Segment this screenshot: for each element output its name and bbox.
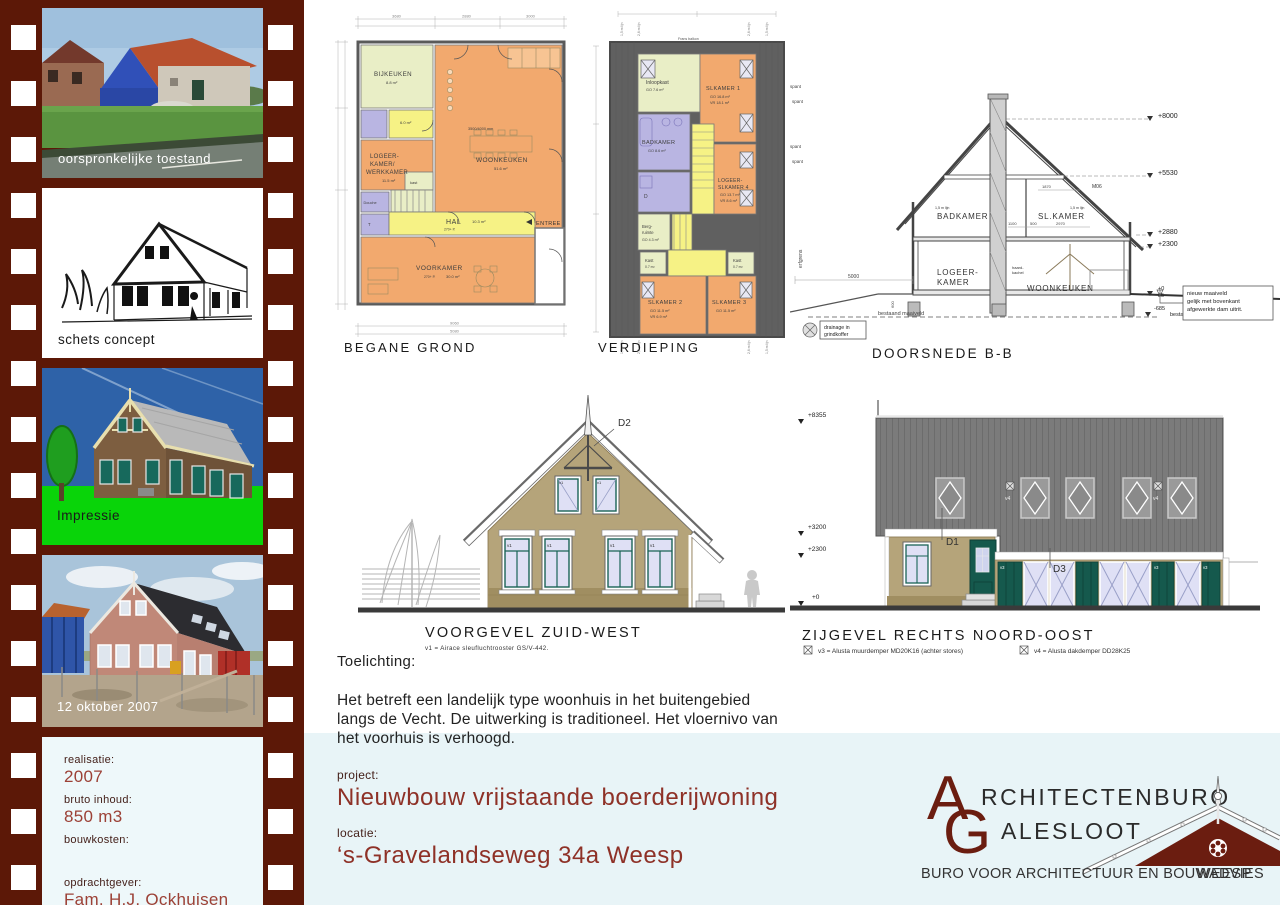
svg-text:v1: v1 [650,543,655,548]
svg-text:v4 = Alusta dakdemper DD28K25: v4 = Alusta dakdemper DD28K25 [1034,648,1131,655]
photo-original-state: oorspronkelijke toestand [42,8,263,178]
svg-text:KAMER/: KAMER/ [370,162,395,168]
floorplan-upper-floor: 1,5 m lijn 2,6 m lijn 2,6 m lijn 1,5 m l… [588,2,806,358]
frans-balkon-label: Frans balkon [678,37,699,41]
dim-label: 9060 [450,321,460,326]
svg-text:1,5 m lijn: 1,5 m lijn [765,340,769,354]
bruto-inhoud-label: bruto inhoud: [64,794,263,806]
svg-text:drainage in: drainage in [824,325,850,331]
svg-text:nieuw maaiveld: nieuw maaiveld [1187,291,1227,297]
title-doorsnede: DOORSNEDE B-B [872,346,1014,361]
project-label: project: [337,768,778,782]
spant-label: spant [792,99,804,104]
svg-text:VOORKAMER: VOORKAMER [416,265,463,272]
svg-text:Berg-: Berg- [642,224,653,229]
svg-text:GO 11.5 m²: GO 11.5 m² [650,309,670,313]
svg-text:grindkoffer: grindkoffer [824,332,849,338]
svg-text:0.7 m²: 0.7 m² [733,265,743,269]
company-logo: A RCHITECTENBURO G ALESLOOT BURO VOOR [905,760,1280,900]
opdrachtgever-value: Fam. H.J. Ockhuisen [64,890,263,905]
svg-text:WOONKEUKEN: WOONKEUKEN [476,157,528,164]
svg-text:1,5 m lijn: 1,5 m lijn [620,22,624,36]
dim-label: 3680 [392,14,402,19]
dim-label: 5080 [450,329,460,334]
entree-label: ENTREE [536,221,561,227]
bruto-inhoud-value: 850 m3 [64,807,263,827]
svg-text:kachel: kachel [1012,270,1024,275]
svg-text:-685: -685 [1154,306,1165,312]
logo-city: WEESP [1197,866,1252,882]
side-elevation: +8355 +3200 +2300 +0 [790,390,1260,680]
svg-text:T: T [368,222,371,227]
svg-text:v3 = Alusta muurdemper MD20K16: v3 = Alusta muurdemper MD20K16 (achter s… [818,648,963,655]
svg-text:1,5 m lijn: 1,5 m lijn [935,206,949,210]
svg-text:6.0 m²: 6.0 m² [400,120,412,125]
svg-text:HAL: HAL [446,219,461,226]
svg-text:2970: 2970 [1056,221,1066,226]
realisatie-value: 2007 [64,767,263,787]
d1-label: D1 [946,537,959,548]
logo-letter-g: G [943,802,991,864]
opdrachtgever-label: opdrachtgever: [64,877,263,889]
svg-text:BADKAMER: BADKAMER [937,212,988,221]
svg-text:GO 16.8 m²: GO 16.8 m² [710,95,731,99]
sketch-concept: schets concept [42,188,263,358]
tree-sketch [362,519,480,607]
svg-text:270+ P.: 270+ P. [424,275,436,279]
svg-text:10.3 m²: 10.3 m² [472,219,486,224]
svg-text:v3: v3 [1203,565,1208,570]
svg-text:SL.KAMER: SL.KAMER [1038,212,1085,221]
presentation-board: oorspronkelijke toestand [0,0,1280,905]
erfgrens-label: erfgrens [798,249,804,268]
svg-text:270+ P.: 270+ P. [444,228,456,232]
photo-label-original-state: oorspronkelijke toestand [58,151,211,166]
svg-text:v4: v4 [1153,496,1159,502]
svg-text:BADKAMER: BADKAMER [642,140,675,146]
svg-text:0.7 m²: 0.7 m² [645,265,655,269]
legend: v3 = Alusta muurdemper MD20K16 (achter s… [804,646,1131,655]
sketch-label: schets concept [58,332,155,347]
project-block: project: Nieuwbouw vrijstaande boerderij… [337,768,778,884]
filmstrip-sprockets-left [11,0,36,905]
render-label: Impressie [57,508,120,523]
render-impression: Impressie [42,368,263,545]
photo-label-construction: 12 oktober 2007 [57,699,158,714]
svg-text:v3: v3 [1154,565,1159,570]
section-drawing: spant spant erfgrens [790,72,1280,372]
svg-text:+0: +0 [812,594,820,601]
svg-text:+8355: +8355 [808,412,827,419]
title-zijgevel: ZIJGEVEL RECHTS NOORD-OOST [802,628,1095,644]
spant-label: spant [792,159,804,164]
elevation-markers: +8355 +3200 +2300 +0 [798,412,827,606]
svg-text:GO 7.6 m²: GO 7.6 m² [646,88,664,92]
explanation-block: Toelichting: Het betreft een landelijk t… [337,653,807,749]
svg-text:3500/4000 mm: 3500/4000 mm [468,127,493,131]
svg-text:v1: v1 [547,543,552,548]
svg-text:v3: v3 [1000,565,1005,570]
svg-text:LOGEER-: LOGEER- [937,268,979,277]
floorplan-ground-floor: 3680 2880 3000 9060 5080 [330,12,585,370]
svg-text:VR 8.6 m²: VR 8.6 m² [720,199,738,203]
svg-text:v1: v1 [610,543,615,548]
svg-text:VR 6.9 m²: VR 6.9 m² [650,315,668,319]
svg-text:+3200: +3200 [808,524,827,531]
svg-text:Douche: Douche [364,201,377,205]
svg-text:2,6 m lijn: 2,6 m lijn [637,22,641,36]
svg-text:GO 11.5 m²: GO 11.5 m² [716,309,736,313]
locatie-label: locatie: [337,826,778,840]
svg-text:v1: v1 [507,543,512,548]
svg-text:+2300: +2300 [808,546,827,553]
svg-text:KAMER: KAMER [937,278,969,287]
svg-text:D: D [644,194,648,200]
svg-text:GO 4.3 m²: GO 4.3 m² [642,238,660,242]
filmstrip: oorspronkelijke toestand [0,0,304,905]
svg-text:51.6 m²: 51.6 m² [494,166,508,171]
title-begane-grond: BEGANE GROND [344,340,477,355]
svg-text:BIJKEUKEN: BIJKEUKEN [374,71,412,78]
project-info-panel: realisatie: 2007 bruto inhoud: 850 m3 bo… [42,737,263,905]
svg-text:1100: 1100 [1008,221,1017,226]
svg-text:Kast: Kast [733,258,742,263]
svg-text:11.5 m²: 11.5 m² [382,178,396,183]
svg-text:VR 18.1 m²: VR 18.1 m² [710,101,730,105]
svg-text:500: 500 [1030,221,1037,226]
dim-label: 2880 [462,14,472,19]
front-elevation: v1 v1 v1 v1 [350,383,790,655]
corner-board [1223,558,1229,608]
svg-text:SLKAMER 1: SLKAMER 1 [706,86,740,92]
person-silhouette [744,570,760,607]
svg-text:1,5 m lijn: 1,5 m lijn [1070,206,1084,210]
svg-text:+2880: +2880 [1158,229,1178,236]
svg-text:2,6 m lijn: 2,6 m lijn [747,340,751,354]
bouwkosten-label: bouwkosten: [64,834,263,846]
realisatie-label: realisatie: [64,754,263,766]
svg-text:LOGEER-: LOGEER- [370,154,399,160]
explanation-text: Het betreft een landelijk type woonhuis … [337,692,792,749]
svg-text:5000: 5000 [848,274,859,280]
svg-text:GO 13.7 m²: GO 13.7 m² [720,193,741,197]
svg-text:SLKAMER 2: SLKAMER 2 [648,300,682,306]
svg-text:WERKKAMER: WERKKAMER [366,170,408,176]
svg-text:kast: kast [410,180,418,185]
svg-text:SLKAMER 4: SLKAMER 4 [718,185,749,191]
d2-label: D2 [618,418,631,429]
rear-facade-section: v3 v3 [995,552,1223,608]
title-voorgevel: VOORGEVEL ZUID-WEST [425,625,642,641]
filmstrip-sprockets-right [268,0,293,905]
dim-label: 3000 [526,14,536,19]
voorgevel-note: v1 = Airace sleufluchtrooster GS/V-442. [425,645,549,652]
svg-text:LOGEER-: LOGEER- [718,178,743,184]
svg-text:1,5 m lijn: 1,5 m lijn [765,22,769,36]
d3-label: D3 [1053,564,1066,575]
svg-text:8.8 m²: 8.8 m² [386,80,398,85]
photo-construction: 12 oktober 2007 [42,555,263,727]
gable-icon [1075,766,1280,878]
spacer [64,846,263,870]
svg-text:ruimte: ruimte [642,230,654,235]
svg-text:gelijk met bovenkant: gelijk met bovenkant [1187,299,1240,305]
svg-text:2,6 m lijn: 2,6 m lijn [747,22,751,36]
svg-text:1870: 1870 [1042,184,1052,189]
svg-text:SLKAMER 3: SLKAMER 3 [712,300,746,306]
bestaand-maaiveld-label: bestaand maaiveld [878,311,924,317]
svg-text:+0: +0 [1158,286,1164,292]
svg-text:WOONKEUKEN: WOONKEUKEN [1027,284,1094,293]
entrance-steps [696,594,724,608]
svg-text:v4: v4 [1005,496,1011,502]
svg-text:Inloopkast: Inloopkast [646,80,669,86]
svg-text:M06: M06 [1092,184,1102,190]
svg-text:+5530: +5530 [1158,170,1178,177]
svg-text:+2300: +2300 [1158,241,1178,248]
svg-text:Kast: Kast [645,258,654,263]
svg-text:30.0 m²: 30.0 m² [446,274,460,279]
locatie-value: ‘s-Gravelandseweg 34a Weesp [337,842,778,870]
drainage-note: drainage in grindkoffer [803,321,866,339]
project-title: Nieuwbouw vrijstaande boerderijwoning [337,784,778,812]
title-verdieping: VERDIEPING [598,340,700,355]
explanation-heading: Toelichting: [337,653,807,670]
svg-text:600: 600 [890,301,895,308]
svg-text:+8000: +8000 [1158,113,1178,120]
svg-text:GO 8.6 m²: GO 8.6 m² [648,149,666,153]
chimney [988,94,1008,313]
svg-text:afgewerkte dam uitrit.: afgewerkte dam uitrit. [1187,307,1243,313]
